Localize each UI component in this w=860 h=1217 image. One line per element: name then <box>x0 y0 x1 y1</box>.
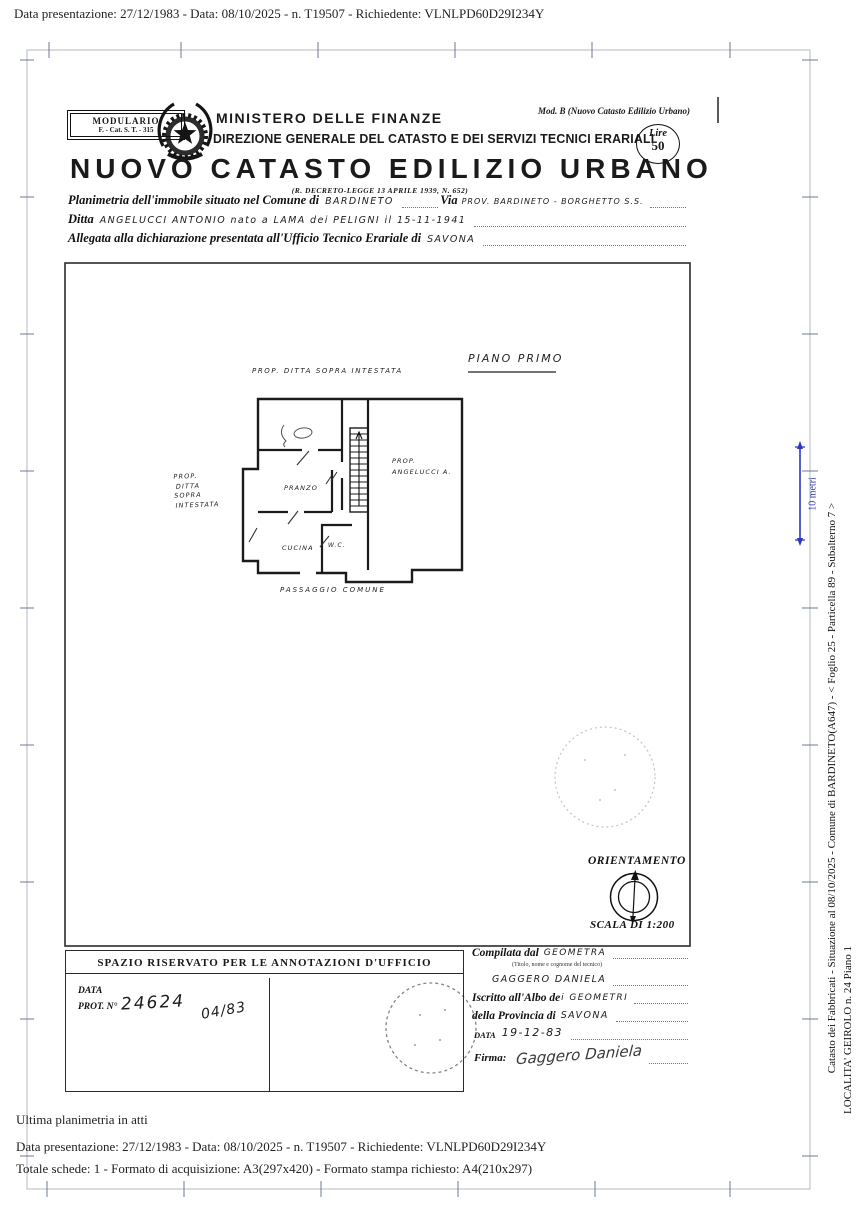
annotations-header: SPAZIO RISERVATO PER LE ANNOTAZIONI D'UF… <box>66 951 463 974</box>
compiler-row2: GAGGERO DANIELA <box>480 972 690 986</box>
plan-top-label: PROP. DITTA SOPRA INTESTATA <box>252 367 403 375</box>
plan-outer-walls <box>243 399 462 582</box>
dotted-rule <box>571 1026 688 1040</box>
ministry-line: MINISTERO DELLE FINANZE <box>216 110 443 126</box>
ditta-label: Ditta <box>68 212 94 227</box>
room-label-cucina: CUCINA <box>282 544 314 552</box>
plan-stairs <box>350 428 368 512</box>
albo-value: i GEOMETRI <box>560 993 632 1004</box>
compiler-row6: Firma: Gaggero Daniela <box>474 1044 690 1064</box>
floor-title: PIANO PRIMO <box>468 352 563 365</box>
plan-furniture-sketch <box>281 425 312 447</box>
tecnico-name-value: GAGGERO DANIELA <box>480 974 611 986</box>
compiler-row5: DATA 19-12-83 <box>474 1026 690 1040</box>
footer-format-line: Totale schede: 1 - Formato di acquisizio… <box>16 1161 532 1177</box>
plan-right-owner-line1: PROP. <box>392 457 416 465</box>
document-title: NUOVO CATASTO EDILIZIO URBANO <box>70 153 690 185</box>
modulario-code: F. - Cat. S. T. - 315 <box>71 126 181 134</box>
scan-header-line: Data presentazione: 27/12/1983 - Data: 0… <box>14 6 544 22</box>
scale-bar-label: 10 metri <box>808 477 819 511</box>
plan-left-line4: INTESTATA <box>174 500 219 511</box>
direction-line: DIREZIONE GENERALE DEL CATASTO E DEI SER… <box>213 131 654 146</box>
right-margin-location-line: LOCALITA' GEIROLO n. 24 Piano 1 <box>842 946 854 1114</box>
via-value: PROV. BARDINETO - BORGHETTO S.S. <box>458 197 648 208</box>
comune-value: BARDINETO <box>319 196 400 208</box>
mod-b-note: Mod. B (Nuovo Catasto Edilizio Urbano) <box>505 106 690 116</box>
annotations-prot-label: PROT. N° <box>78 1002 117 1012</box>
right-margin-cadastral-line: Catasto dei Fabbricati - Situazione al 0… <box>826 503 838 1073</box>
compiler-note: (Titolo, nome e cognome del tecnico) <box>512 962 602 968</box>
compiler-data-value: 19-12-83 <box>496 1026 569 1040</box>
plan-sheet-border <box>65 263 690 946</box>
orientation-label: ORIENTAMENTO <box>588 855 686 867</box>
compiler-data-label: DATA <box>474 1030 496 1040</box>
ditta-value: ANGELUCCI ANTONIO nato a LAMA dei PELIGN… <box>94 215 473 227</box>
lire-stamp-value: 50 <box>637 139 679 152</box>
scale-label: SCALA DI 1:200 <box>590 919 675 931</box>
dotted-rule <box>634 990 688 1004</box>
faint-stamp <box>555 727 655 827</box>
modulario-title: MODULARIO <box>71 116 181 126</box>
annotations-data-label: DATA <box>78 986 102 996</box>
plan-right-owner-line2: ANGELUCCI A. <box>392 468 452 476</box>
annotations-prot-value: 24624 <box>121 991 186 1014</box>
plan-door-slashes <box>249 451 337 547</box>
albo-label: Iscritto all'Albo de <box>472 992 560 1004</box>
compiler-row3: Iscritto all'Albo de i GEOMETRI <box>472 990 690 1004</box>
footer-presentation-line: Data presentazione: 27/12/1983 - Data: 0… <box>16 1139 546 1155</box>
compiler-row4: della Provincia di SAVONA <box>472 1008 690 1022</box>
modulario-box: MODULARIO F. - Cat. S. T. - 315 <box>67 110 185 140</box>
via-label: Via <box>440 193 457 208</box>
room-label-wc: W.C. <box>328 542 346 549</box>
form-line-allegata: Allegata alla dichiarazione presentata a… <box>68 231 688 246</box>
dotted-rule <box>402 194 438 208</box>
scale-bar <box>795 441 805 546</box>
dotted-rule <box>613 945 688 959</box>
form-line-ditta: Ditta ANGELUCCI ANTONIO nato a LAMA dei … <box>68 212 688 227</box>
firma-label: Firma: <box>474 1052 506 1064</box>
dotted-rule <box>649 1050 688 1064</box>
compiler-row1: Compilata dal GEOMETRA <box>472 945 690 959</box>
compilata-label: Compilata dal <box>472 947 539 959</box>
form-line-comune: Planimetria dell'immobile situato nel Co… <box>68 193 688 208</box>
dotted-rule <box>616 1008 688 1022</box>
plan-left-label: PROP. DITTA SOPRA INTESTATA <box>173 471 219 511</box>
footer-note: Ultima planimetria in atti <box>16 1112 148 1128</box>
dotted-rule <box>483 232 686 246</box>
comune-label: Planimetria dell'immobile situato nel Co… <box>68 193 319 208</box>
dotted-rule <box>650 194 686 208</box>
allegata-value: SAVONA <box>421 234 481 246</box>
dotted-rule <box>613 972 688 986</box>
plan-bottom-label: PASSAGGIO COMUNE <box>280 586 386 594</box>
provincia-label: della Provincia di <box>472 1010 556 1022</box>
annotations-date-value: 04/83 <box>200 999 247 1023</box>
document-page: Data presentazione: 27/12/1983 - Data: 0… <box>0 0 860 1217</box>
room-label-pranzo: PRANZO <box>284 484 318 492</box>
allegata-label: Allegata alla dichiarazione presentata a… <box>68 231 421 246</box>
annotations-divider <box>269 978 270 1091</box>
dotted-rule <box>474 213 686 227</box>
compass-icon <box>609 869 659 925</box>
annotations-box: SPAZIO RISERVATO PER LE ANNOTAZIONI D'UF… <box>65 950 464 1092</box>
provincia-value: SAVONA <box>556 1010 614 1022</box>
compilata-value: GEOMETRA <box>539 948 611 959</box>
